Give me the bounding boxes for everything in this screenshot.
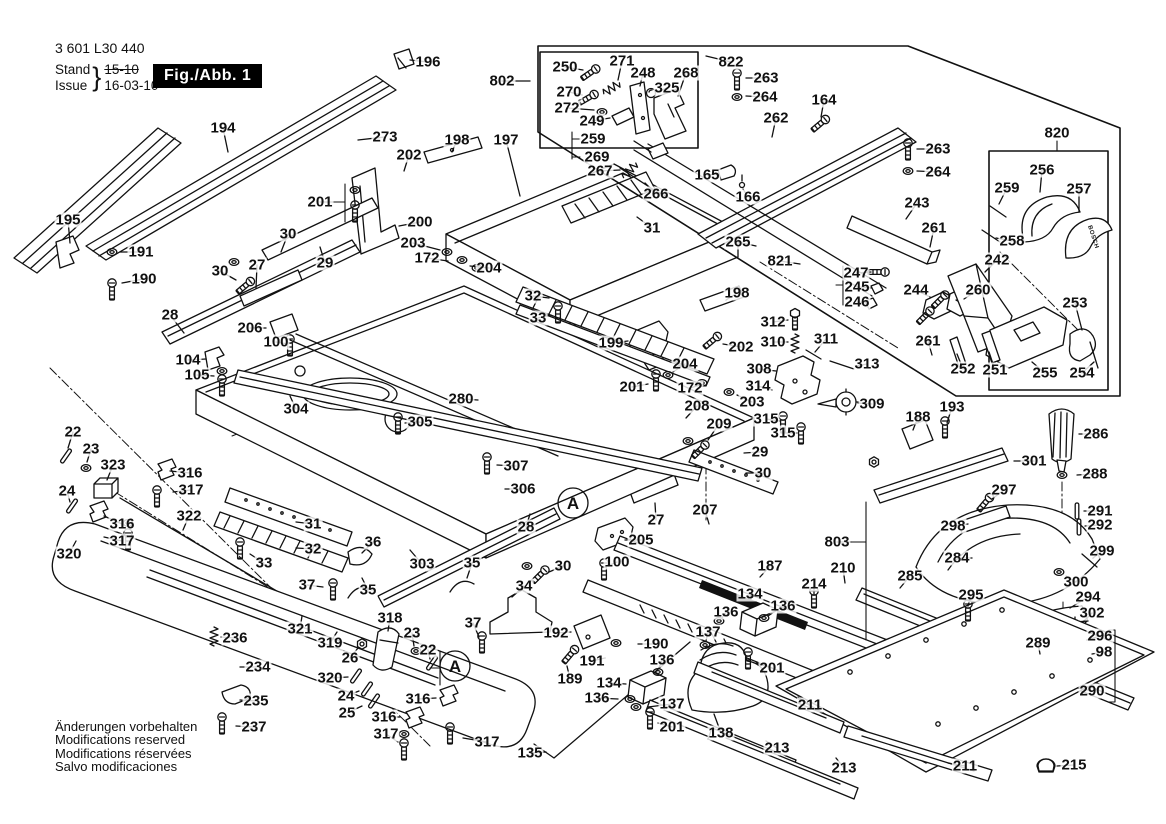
block-134a	[628, 671, 666, 704]
drawing-shape	[110, 291, 115, 299]
drawing-shape	[614, 642, 618, 645]
pin-166	[740, 183, 745, 188]
drawing-shape	[737, 395, 752, 402]
drawing-shape	[331, 591, 336, 599]
drawing-shape	[220, 370, 224, 373]
drawing-shape	[727, 391, 731, 394]
wedge-249	[612, 108, 634, 125]
washer-icon	[631, 704, 641, 711]
drawing-shape	[900, 576, 910, 588]
screw-icon	[577, 89, 600, 107]
drawing-shape	[386, 734, 398, 742]
drawing-shape	[110, 287, 115, 300]
knob-309	[836, 392, 856, 412]
drawing-shape	[84, 467, 88, 470]
drawing-shape	[906, 203, 917, 219]
screw-icon	[579, 63, 601, 82]
drawing-shape	[1040, 170, 1042, 192]
drawing-shape	[851, 502, 866, 640]
legal-line-en: Modifications reserved	[55, 733, 197, 746]
screw-icon	[400, 739, 408, 760]
drawing-shape	[735, 81, 740, 89]
drawing-shape	[760, 566, 770, 577]
washer-icon	[217, 368, 227, 375]
spring-icon	[602, 80, 622, 97]
drawing-shape	[714, 618, 724, 625]
drawing-shape	[726, 738, 840, 784]
washer-icon	[663, 372, 673, 379]
drawing-shape	[758, 386, 772, 390]
drawing-shape	[556, 632, 571, 633]
washer-icon	[399, 731, 409, 738]
bracket-34	[490, 590, 552, 634]
drawing-shape	[473, 623, 479, 637]
drawing-shape	[123, 520, 133, 527]
legal-line-fr: Modifications réservées	[55, 747, 197, 760]
figure-label: Fig./Abb. 1	[153, 64, 262, 88]
drawing-shape	[307, 585, 323, 587]
drawing-shape	[791, 334, 799, 353]
drawing-shape	[988, 496, 992, 499]
drawing-shape	[104, 516, 122, 524]
drawing-shape	[402, 751, 407, 759]
drawing-shape	[666, 374, 670, 377]
screw-icon	[478, 632, 486, 653]
drawing-shape	[530, 752, 546, 753]
drawing-shape	[480, 644, 485, 652]
slat-213b	[708, 728, 858, 799]
drawing-shape	[569, 92, 582, 95]
drawing-shape	[522, 563, 532, 570]
drawing-shape	[657, 88, 667, 92]
drawing-shape	[799, 435, 804, 443]
drawing-shape	[735, 96, 739, 99]
drawing-shape	[655, 503, 656, 520]
drawing-shape	[404, 155, 409, 171]
bracket-308	[775, 356, 820, 404]
drawing-shape	[347, 706, 362, 713]
drawing-shape	[593, 92, 596, 96]
drawing-shape	[427, 258, 448, 261]
pin-311	[806, 350, 821, 359]
drawing-shape	[906, 147, 911, 160]
drawing-shape	[746, 96, 765, 97]
drawing-shape	[992, 490, 1004, 499]
drawing-shape	[525, 565, 529, 568]
wrench-135	[534, 642, 690, 758]
drawing-shape	[276, 342, 288, 344]
screw-icon	[702, 331, 724, 351]
drawing-shape	[773, 320, 788, 322]
drawing-shape	[818, 399, 836, 407]
drawing-shape	[600, 111, 604, 114]
drawing-shape	[703, 644, 707, 647]
screw-icon	[153, 486, 161, 507]
issue-value: 16-03-10	[104, 78, 158, 94]
pin-313	[830, 361, 854, 369]
drawing-shape	[602, 571, 607, 579]
drawing-shape	[448, 735, 453, 743]
drawing-shape	[928, 341, 932, 355]
drawing-shape	[573, 648, 577, 651]
drawing-shape	[549, 566, 563, 572]
drawing-shape	[602, 80, 622, 97]
drawing-shape	[592, 658, 605, 661]
washer-icon	[732, 94, 742, 101]
drawing-shape	[799, 431, 804, 444]
drawing-shape	[917, 171, 938, 172]
drawing-shape	[217, 368, 227, 375]
drawing-shape	[173, 490, 191, 492]
drawing-shape	[480, 640, 485, 653]
drawing-shape	[1057, 460, 1066, 472]
drawing-shape	[1085, 525, 1100, 526]
drawing-shape	[781, 424, 786, 432]
drawing-shape	[879, 454, 1004, 495]
drawing-shape	[565, 67, 583, 70]
drawing-shape	[738, 242, 756, 246]
washer-icon	[714, 618, 724, 625]
drawing-shape	[1077, 474, 1095, 475]
nut-icon	[870, 457, 879, 467]
drawing-shape	[649, 90, 652, 92]
drawing-shape	[183, 516, 189, 530]
drawing-shape	[706, 56, 731, 62]
drawing-shape	[1075, 303, 1082, 330]
drawing-shape	[1057, 472, 1067, 479]
clip-165	[718, 165, 735, 180]
drawing-shape	[793, 317, 798, 330]
end-cap-196	[394, 49, 414, 69]
drawing-shape	[812, 599, 817, 607]
drawing-shape	[906, 170, 910, 173]
drawing-shape	[716, 335, 719, 339]
pin-259b	[990, 206, 1006, 217]
screw-icon	[779, 412, 787, 433]
drawing-shape	[597, 109, 607, 116]
washer-icon	[1057, 472, 1067, 479]
plate-192	[574, 615, 610, 649]
drawing-shape	[793, 321, 798, 329]
screw-icon	[236, 538, 244, 559]
legal-line-de: Änderungen vorbehalten	[55, 720, 197, 733]
washer-icon	[123, 520, 133, 527]
hook-35a	[450, 581, 474, 592]
exploded-view-drawing: AA BOSCH	[0, 0, 1166, 824]
drawing-shape	[628, 698, 632, 701]
drawing-shape	[567, 666, 570, 679]
pin-258	[982, 230, 1000, 242]
drawing-shape	[223, 128, 228, 152]
stand-value: 15-10	[104, 62, 158, 78]
washer-icon	[81, 465, 91, 472]
clip-316b	[90, 501, 108, 522]
rail-243	[847, 216, 932, 264]
drawing-shape	[858, 403, 872, 404]
drawing-shape	[250, 554, 264, 563]
drawing-shape	[232, 261, 236, 264]
drawing-shape	[744, 452, 760, 453]
drawing-shape	[836, 266, 843, 305]
drawing-shape	[658, 723, 672, 727]
drawing-shape	[256, 265, 257, 288]
pin-icon	[66, 498, 78, 513]
drawing-shape	[1057, 765, 1074, 766]
drawing-shape	[743, 189, 748, 197]
drawing-shape	[67, 491, 70, 502]
drawing-shape	[648, 716, 653, 729]
hook-35b	[348, 587, 372, 598]
drawing-shape	[735, 77, 740, 90]
pin-icon	[1075, 503, 1079, 519]
drawing-shape: A	[567, 494, 579, 513]
plate-188	[902, 420, 933, 449]
screw-icon	[286, 335, 294, 356]
drawing-shape	[236, 726, 254, 727]
drawing-shape	[856, 364, 867, 366]
drawing-shape	[732, 94, 742, 101]
drawing-shape	[723, 344, 741, 347]
drawing-shape	[812, 595, 817, 608]
drawing-shape	[229, 259, 239, 266]
drawing-shape	[766, 419, 780, 421]
drawing-shape	[943, 425, 948, 438]
drawing-shape	[81, 465, 91, 472]
screw-icon	[733, 69, 741, 90]
drawing-shape	[631, 704, 641, 711]
parts-diagram: AA BOSCH 3 601 L30 440 Stand Issue } 15-…	[0, 0, 1166, 824]
drawing-shape	[690, 385, 700, 388]
drawing-shape	[602, 567, 607, 580]
drawing-shape	[618, 61, 622, 80]
rail-301	[874, 448, 1008, 503]
plate-206	[270, 314, 298, 338]
spring-icon	[791, 334, 799, 353]
drawing-shape	[413, 243, 440, 250]
drawing-shape	[197, 375, 214, 376]
drawing-shape	[872, 460, 876, 464]
drawing-shape	[766, 741, 777, 748]
lever-36	[348, 547, 372, 564]
drawing-shape	[663, 372, 673, 379]
crescent-257	[1065, 218, 1112, 258]
pin-icon	[60, 448, 72, 463]
drawing-shape	[220, 721, 225, 734]
screw-icon	[600, 559, 608, 580]
drawing-shape	[68, 432, 73, 448]
washer-icon	[903, 168, 913, 175]
drawing-shape	[943, 429, 948, 437]
drawing-shape	[155, 498, 160, 506]
drawing-shape	[1082, 362, 1094, 373]
drawing-shape	[656, 671, 660, 674]
drawing-shape	[543, 568, 547, 572]
block-268	[654, 89, 686, 139]
drawing-shape	[707, 174, 719, 175]
screw-icon	[108, 279, 116, 300]
drawing-shape: A	[449, 657, 461, 676]
brace-glyph: }	[92, 62, 101, 93]
drawing-shape	[611, 640, 621, 647]
clip-316a	[158, 459, 176, 480]
drawing-shape	[592, 118, 610, 121]
revision-stamp: Stand Issue } 15-10 16-03-10	[55, 62, 158, 93]
drawing-shape	[836, 758, 844, 768]
drawing-shape	[821, 100, 824, 117]
drawing-shape	[567, 108, 594, 110]
drawing-shape	[597, 698, 618, 699]
legal-notice: Änderungen vorbehalten Modifications res…	[55, 720, 197, 773]
drawing-shape	[608, 562, 617, 566]
drawing-shape	[648, 720, 653, 728]
drawing-shape	[903, 168, 913, 175]
drawing-shape	[906, 151, 911, 159]
drawing-shape	[1060, 474, 1064, 477]
drawing-shape	[722, 612, 726, 618]
drawing-shape	[781, 420, 786, 433]
plate-198b	[700, 286, 744, 311]
drawing-shape	[678, 73, 686, 96]
drawing-shape	[724, 389, 734, 396]
end-cap-195	[56, 236, 79, 268]
drawing-shape	[916, 290, 930, 297]
drawing-shape	[930, 228, 934, 247]
plate-27a	[240, 270, 302, 306]
screw-icon	[329, 579, 337, 600]
drawing-shape	[402, 733, 406, 736]
screw-icon	[797, 423, 805, 444]
drawing-shape	[402, 747, 407, 760]
drawing-shape	[399, 731, 409, 738]
bolt-icon	[791, 309, 800, 331]
body-284	[916, 505, 1100, 604]
drawing-shape	[358, 137, 385, 140]
wedge-252	[950, 337, 966, 367]
screw-icon	[560, 644, 580, 666]
drawing-shape	[780, 261, 800, 264]
drawing-shape	[126, 522, 130, 525]
drawing-shape	[249, 280, 252, 284]
drawing-shape	[155, 494, 160, 507]
washer-icon	[597, 109, 607, 116]
drawing-shape	[331, 587, 336, 600]
stand-label: Stand	[55, 62, 90, 78]
drawing-shape	[759, 369, 776, 371]
drawing-shape	[410, 550, 422, 564]
drawing-shape	[634, 706, 638, 709]
drawing-shape	[843, 568, 845, 583]
drawing-shape	[824, 118, 827, 122]
drawing-shape	[870, 457, 879, 467]
ball-icon	[647, 89, 656, 98]
screw-icon	[218, 713, 226, 734]
drawing-shape	[220, 271, 236, 280]
cube-323	[94, 478, 118, 498]
washer-icon	[522, 563, 532, 570]
screw-icon	[530, 564, 551, 585]
drawing-shape	[985, 260, 997, 272]
drawing-shape	[220, 725, 225, 733]
drawing-shape	[448, 731, 453, 744]
legal-line-es: Salvo modificaciones	[55, 760, 197, 773]
washer-icon	[724, 389, 734, 396]
type-number: 3 601 L30 440	[55, 40, 145, 56]
drawing-shape	[815, 339, 826, 352]
drawing-shape	[1032, 362, 1045, 373]
drawing-shape	[60, 448, 72, 463]
issue-label: Issue	[55, 78, 90, 94]
drawing-shape	[506, 140, 520, 196]
drawing-shape	[188, 359, 206, 360]
washer-icon	[611, 640, 621, 647]
drawing-shape	[87, 449, 91, 462]
washer-icon	[229, 259, 239, 266]
drawing-shape	[772, 118, 776, 137]
drawing-shape	[717, 620, 721, 623]
pin-259a	[634, 141, 651, 152]
clip-104	[205, 347, 224, 370]
drawing-shape	[66, 498, 78, 513]
drawing-shape	[594, 67, 597, 71]
drawing-shape	[609, 683, 626, 684]
drawing-shape	[362, 578, 368, 590]
drawing-shape	[999, 188, 1007, 204]
drawing-shape	[1075, 503, 1079, 519]
drawing-shape	[399, 222, 420, 226]
clip-235	[222, 685, 250, 704]
drawing-shape	[122, 279, 144, 283]
